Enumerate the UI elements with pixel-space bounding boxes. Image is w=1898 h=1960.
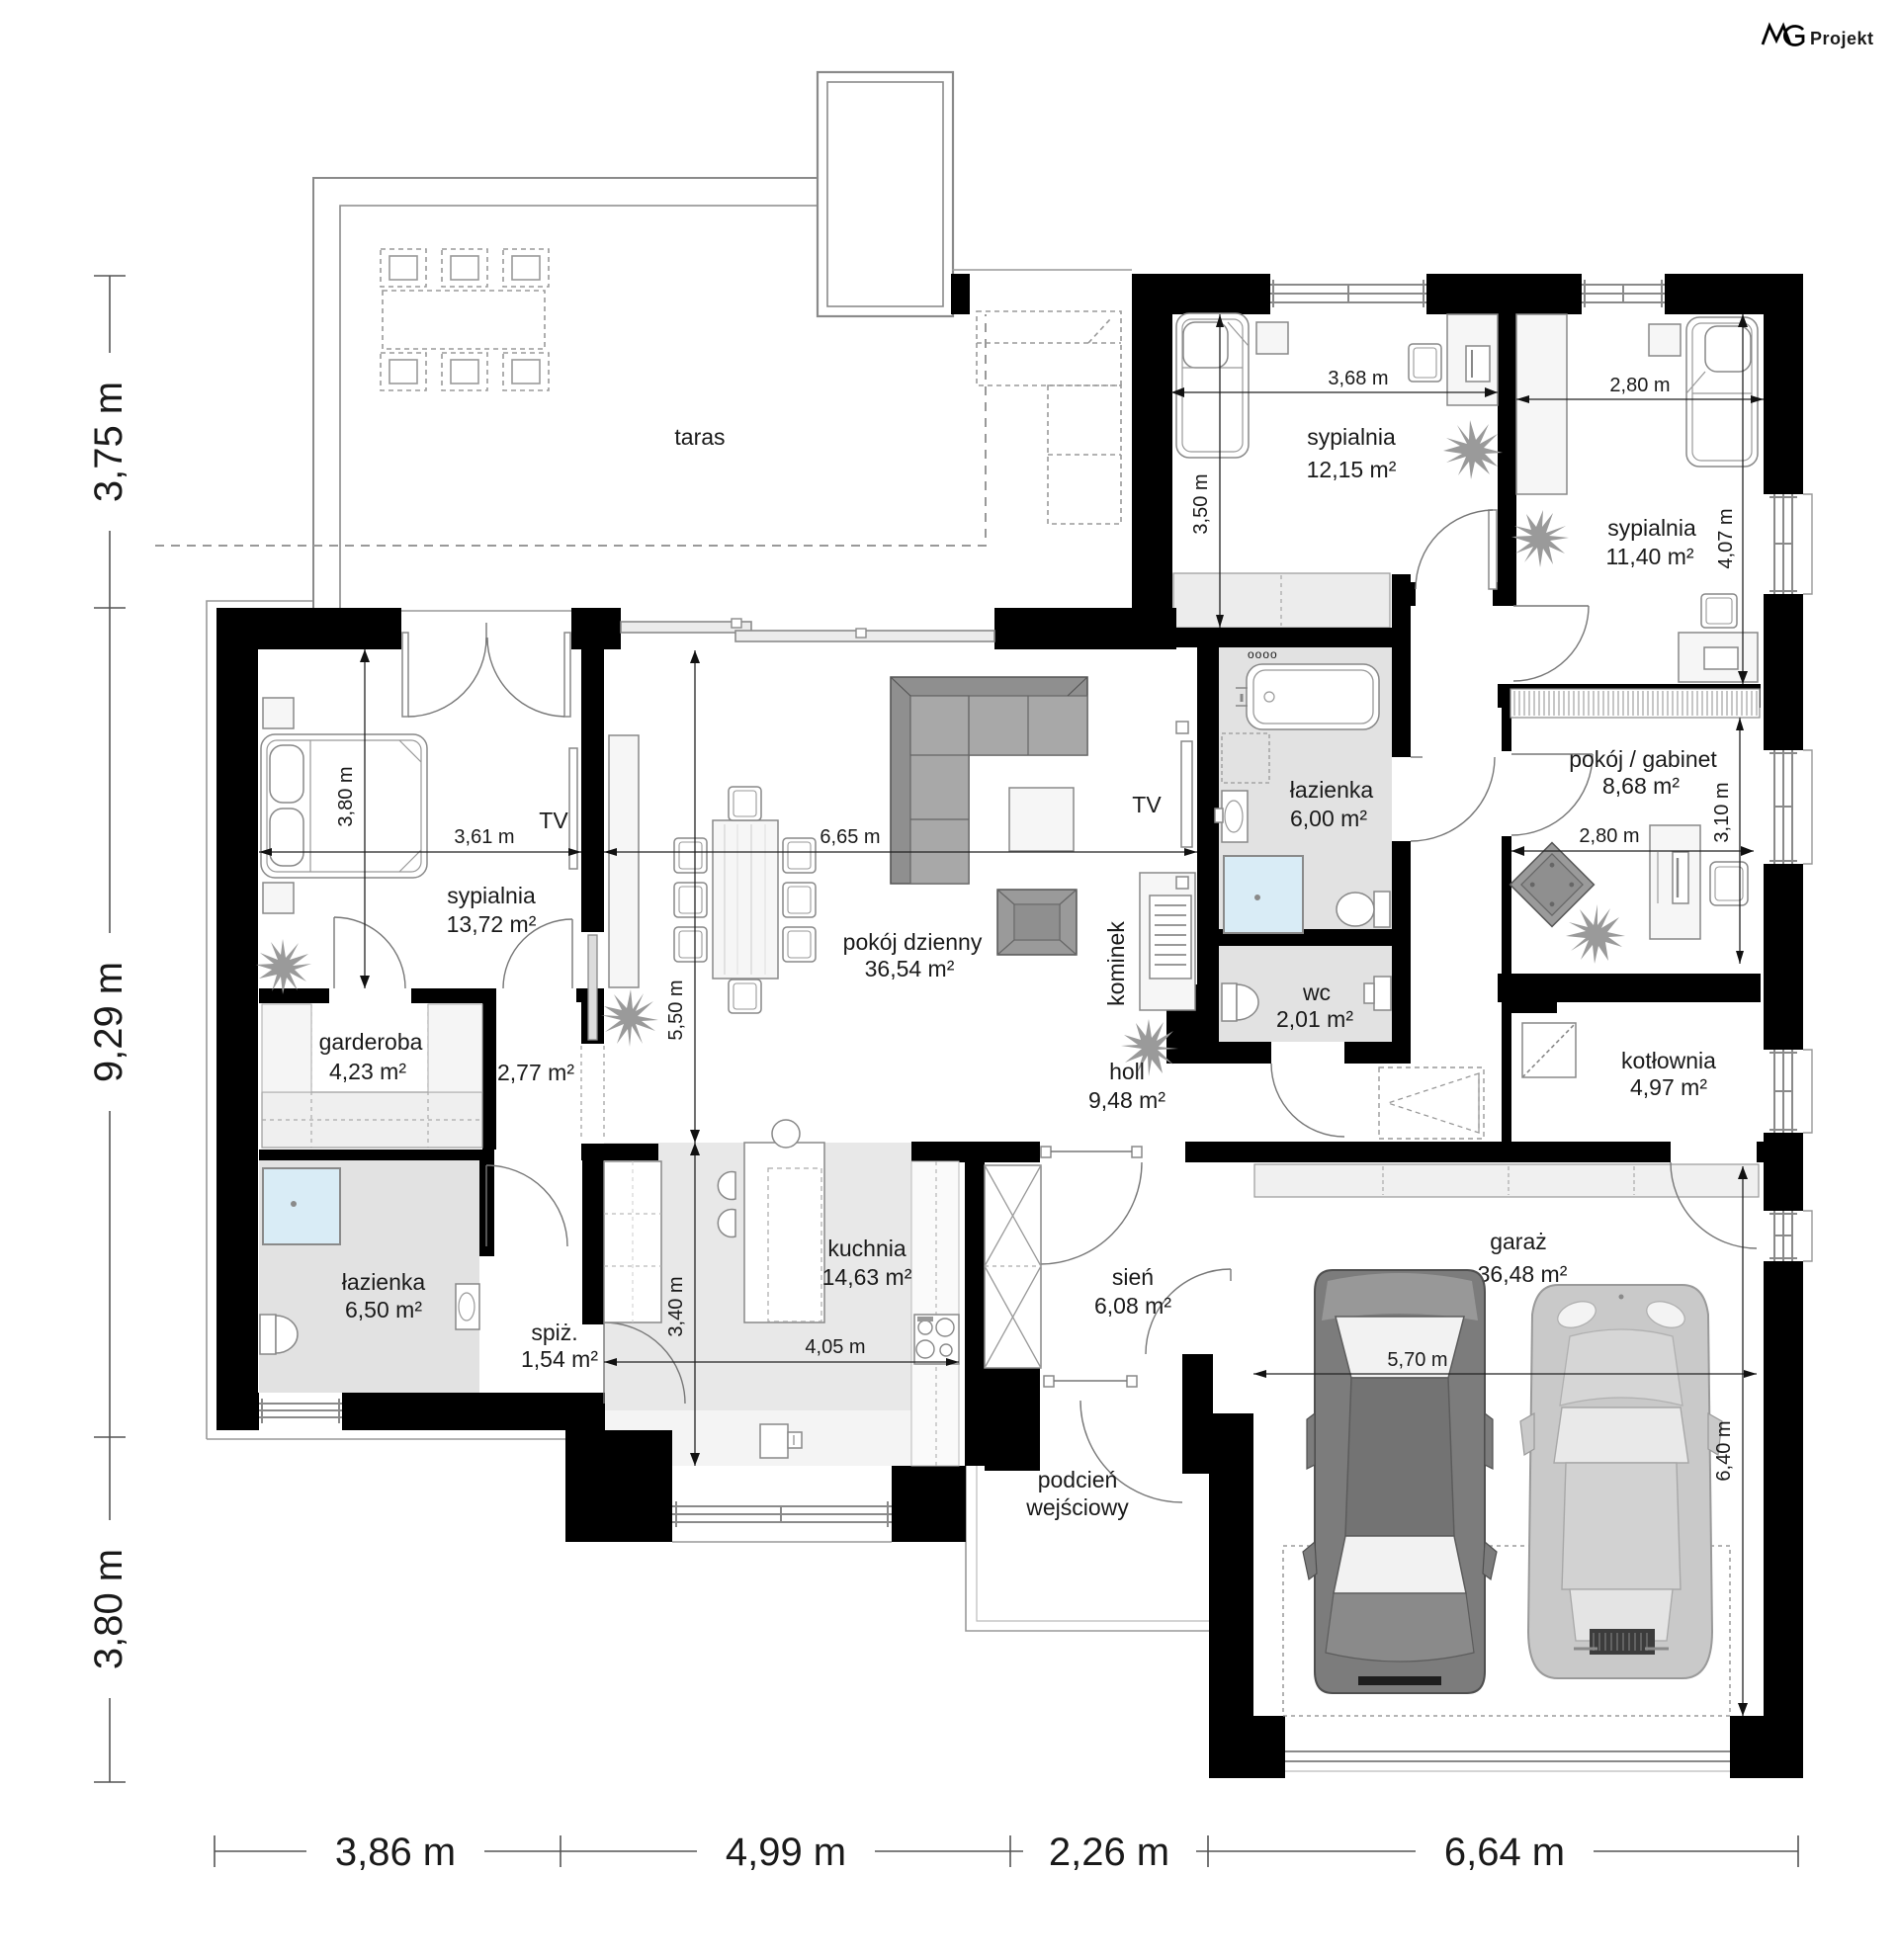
svg-text:sypialnia: sypialnia (447, 883, 536, 908)
svg-text:2,80 m: 2,80 m (1609, 375, 1670, 396)
svg-text:3,86 m: 3,86 m (335, 1831, 456, 1874)
svg-text:9,29 m: 9,29 m (87, 962, 130, 1082)
svg-text:3,10 m: 3,10 m (1711, 782, 1733, 842)
svg-text:4,99 m: 4,99 m (726, 1831, 846, 1874)
svg-text:6,64 m: 6,64 m (1444, 1831, 1565, 1874)
svg-text:garderoba: garderoba (319, 1029, 423, 1055)
svg-text:wejściowy: wejściowy (1025, 1494, 1129, 1520)
svg-text:garaż: garaż (1490, 1229, 1547, 1254)
svg-text:łazienka: łazienka (342, 1269, 426, 1295)
svg-text:4,05 m: 4,05 m (805, 1336, 865, 1358)
svg-text:6,50 m²: 6,50 m² (345, 1297, 422, 1322)
svg-text:4,07 m: 4,07 m (1715, 508, 1737, 568)
svg-text:Projekt: Projekt (1810, 29, 1874, 48)
svg-text:holl: holl (1109, 1059, 1145, 1084)
svg-text:2,01 m²: 2,01 m² (1276, 1006, 1353, 1032)
svg-text:sypialnia: sypialnia (1307, 424, 1396, 450)
svg-text:2,77 m²: 2,77 m² (497, 1060, 574, 1085)
svg-text:12,15 m²: 12,15 m² (1307, 457, 1397, 482)
svg-text:TV: TV (1132, 792, 1162, 817)
svg-text:9,48 m²: 9,48 m² (1088, 1087, 1165, 1113)
svg-text:wc: wc (1302, 980, 1331, 1005)
svg-text:11,40 m²: 11,40 m² (1605, 544, 1693, 569)
svg-text:4,23 m²: 4,23 m² (329, 1059, 406, 1084)
svg-text:3,40 m: 3,40 m (665, 1276, 687, 1336)
svg-text:4,97 m²: 4,97 m² (1630, 1074, 1707, 1100)
svg-text:36,48 m²: 36,48 m² (1478, 1261, 1568, 1287)
svg-text:2,26 m: 2,26 m (1049, 1831, 1169, 1874)
svg-text:3,68 m: 3,68 m (1328, 368, 1388, 389)
svg-text:5,70 m: 5,70 m (1387, 1349, 1447, 1371)
svg-text:łazienka: łazienka (1290, 777, 1374, 803)
svg-text:6,65 m: 6,65 m (820, 826, 880, 848)
svg-text:taras: taras (674, 424, 725, 450)
svg-text:kominek: kominek (1103, 921, 1129, 1006)
svg-text:2,80 m: 2,80 m (1579, 825, 1639, 847)
svg-text:36,54 m²: 36,54 m² (865, 956, 955, 981)
svg-text:spiż.: spiż. (531, 1320, 577, 1345)
svg-text:3,80 m: 3,80 m (335, 766, 357, 826)
svg-text:13,72 m²: 13,72 m² (447, 911, 537, 937)
svg-text:kotłownia: kotłownia (1621, 1048, 1716, 1073)
svg-text:oooo: oooo (1248, 647, 1278, 661)
svg-text:TV: TV (539, 808, 568, 833)
svg-text:kuchnia: kuchnia (827, 1236, 906, 1261)
svg-text:14,63 m²: 14,63 m² (822, 1264, 912, 1290)
svg-text:3,75 m: 3,75 m (87, 382, 130, 502)
svg-text:3,61 m: 3,61 m (454, 826, 514, 848)
svg-text:8,68 m²: 8,68 m² (1602, 773, 1680, 799)
svg-text:6,40 m: 6,40 m (1713, 1420, 1735, 1481)
svg-text:sypialnia: sypialnia (1607, 515, 1696, 541)
svg-text:6,00 m²: 6,00 m² (1290, 806, 1367, 831)
svg-text:3,50 m: 3,50 m (1190, 473, 1212, 534)
svg-text:pokój / gabinet: pokój / gabinet (1569, 746, 1717, 772)
svg-text:1,54 m²: 1,54 m² (521, 1346, 598, 1372)
svg-text:5,50 m: 5,50 m (665, 980, 687, 1040)
svg-text:3,80 m: 3,80 m (87, 1549, 130, 1669)
svg-text:6,08 m²: 6,08 m² (1094, 1293, 1171, 1319)
svg-text:pokój dzienny: pokój dzienny (843, 929, 983, 955)
svg-text:podcień: podcień (1038, 1467, 1118, 1492)
svg-text:sień: sień (1112, 1264, 1154, 1290)
